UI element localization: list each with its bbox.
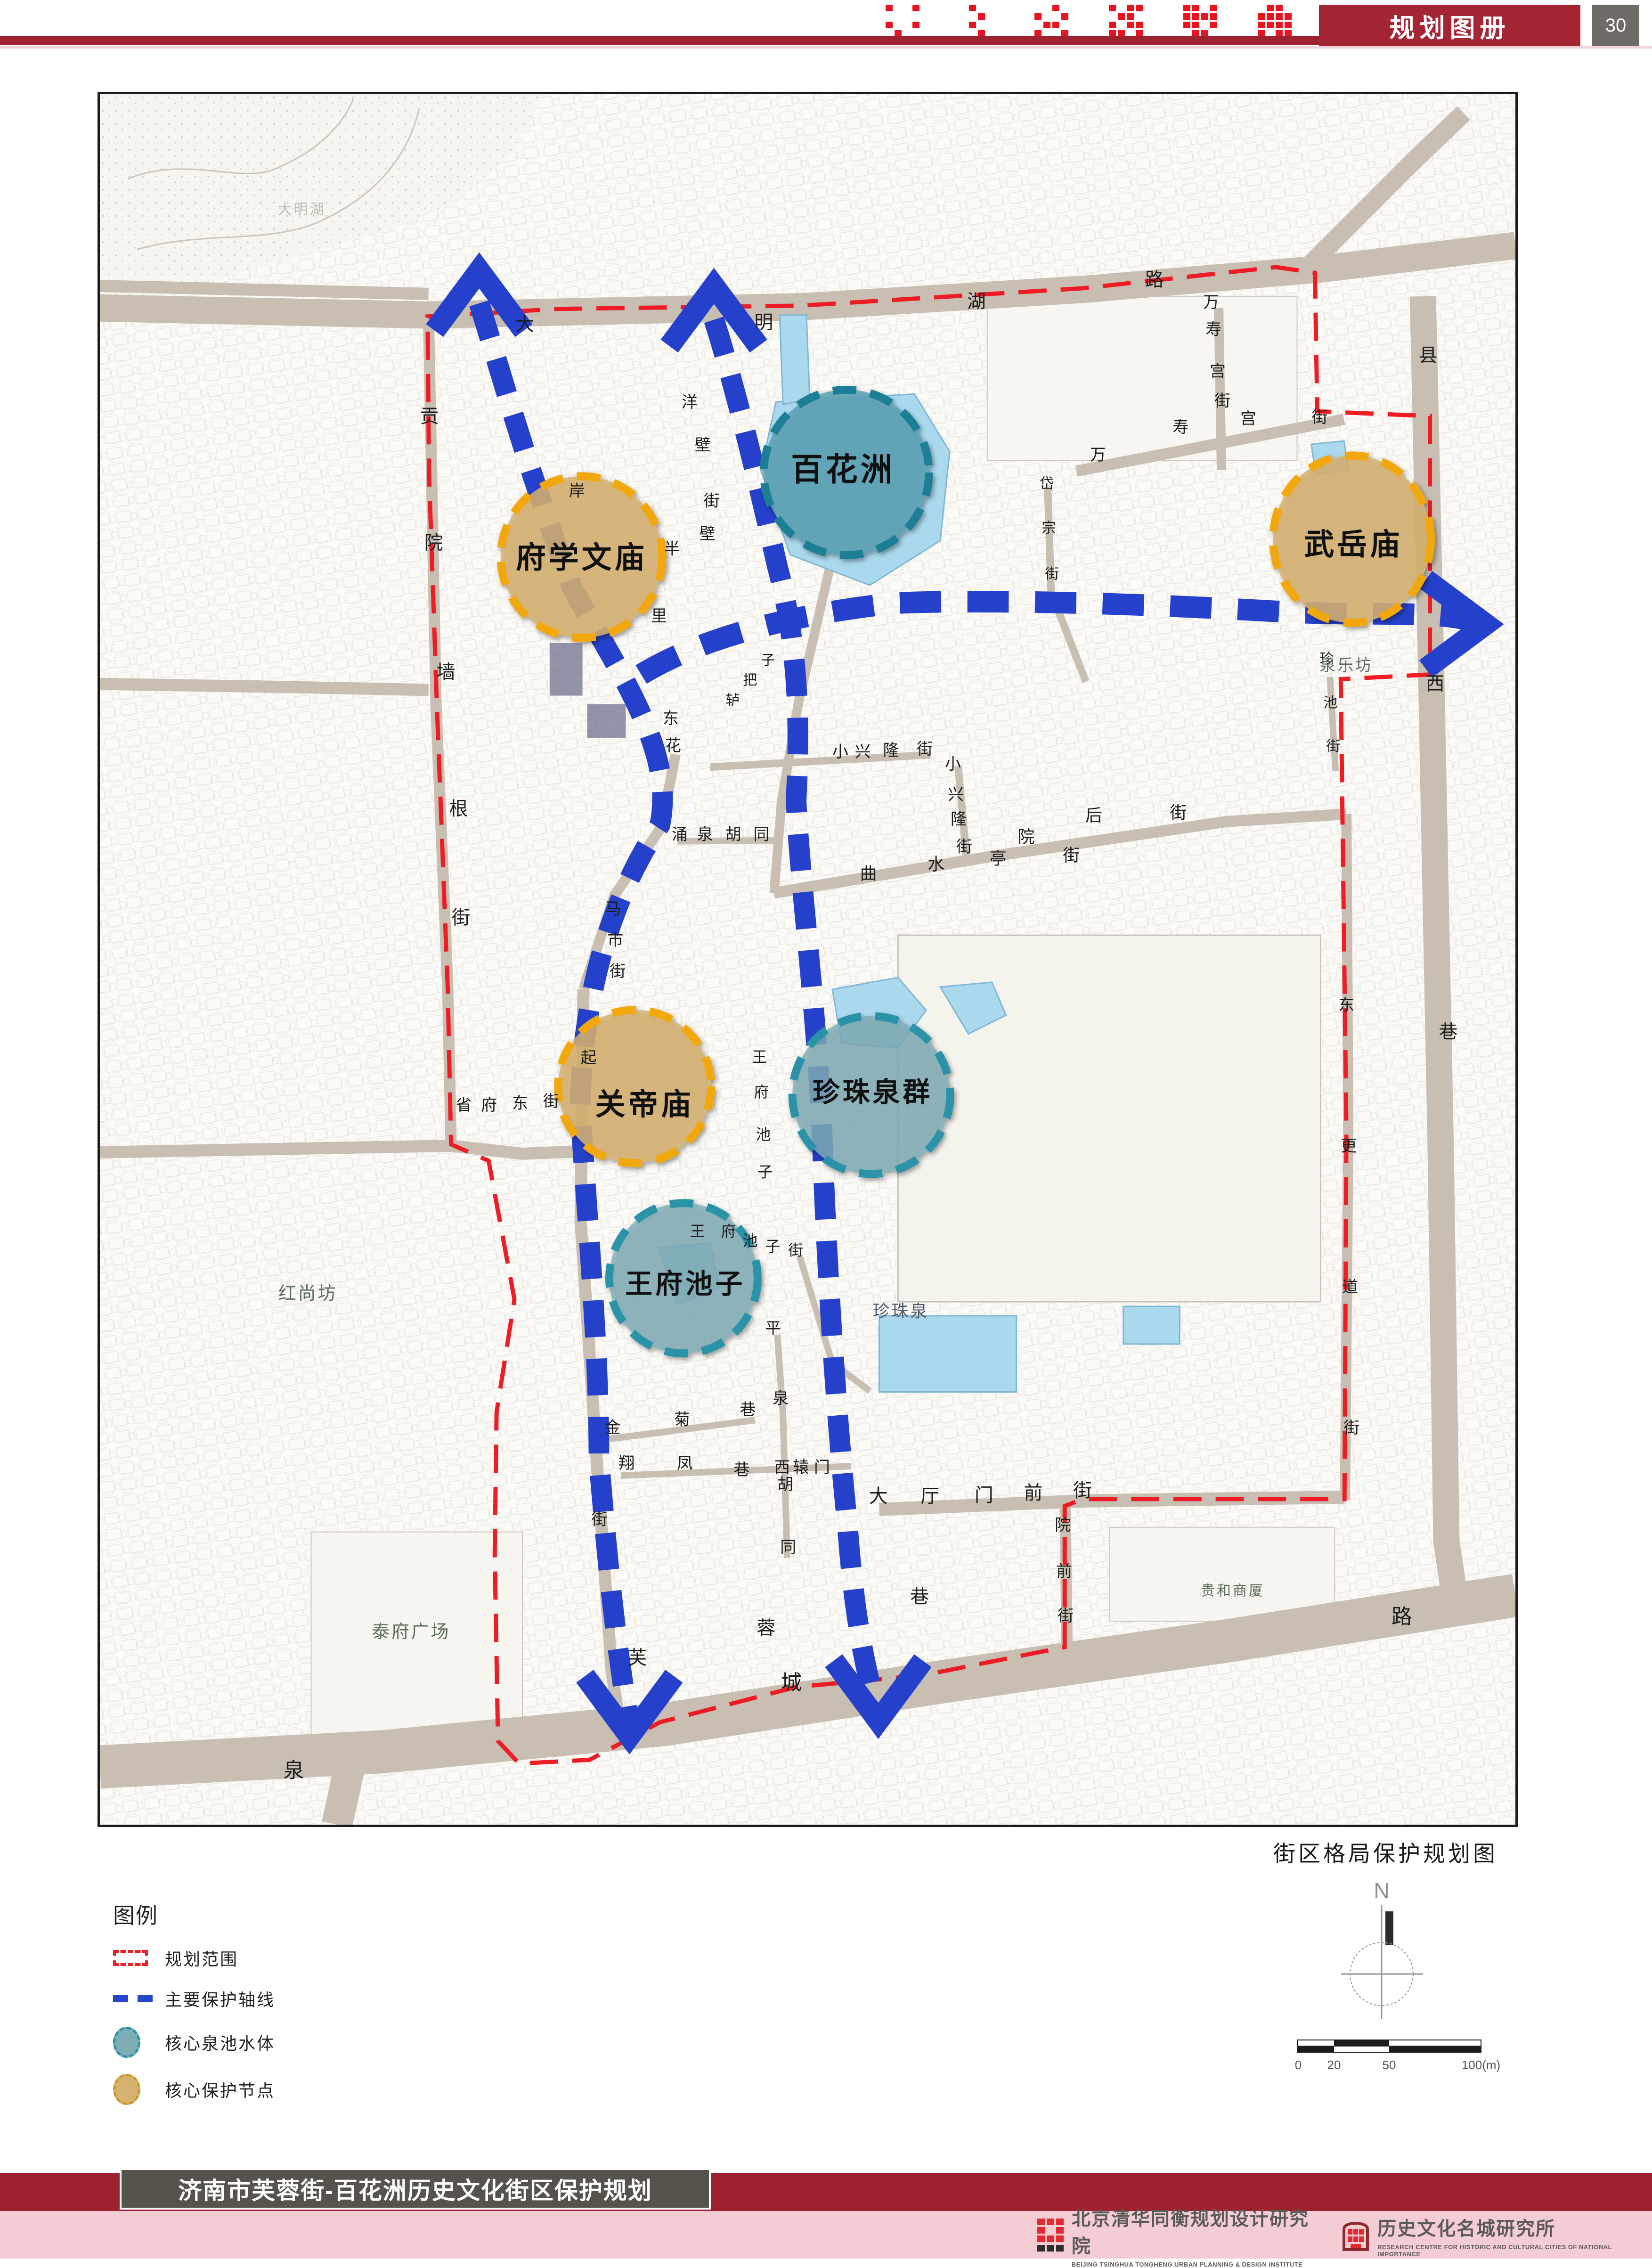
- svg-text:路: 路: [1392, 1605, 1412, 1628]
- svg-text:50: 50: [1383, 2058, 1396, 2072]
- svg-text:半: 半: [664, 540, 680, 558]
- svg-text:子: 子: [761, 653, 775, 669]
- svg-text:门: 门: [975, 1485, 993, 1506]
- svg-text:马: 马: [605, 900, 621, 918]
- svg-text:明: 明: [754, 312, 773, 333]
- svg-text:壁: 壁: [695, 436, 711, 454]
- svg-text:泰府广场: 泰府广场: [372, 1622, 450, 1642]
- svg-text:岱: 岱: [1040, 476, 1054, 492]
- svg-text:府学文庙: 府学文庙: [516, 540, 647, 574]
- header-section-title: 规划图册: [1319, 5, 1580, 46]
- svg-text:兴: 兴: [855, 743, 871, 761]
- legend-item: 核心保护节点: [113, 2074, 471, 2105]
- svg-text:亭: 亭: [990, 849, 1007, 868]
- org2-name-en: RESEARCH CENTRE FOR HISTORIC AND CULTURA…: [1377, 2244, 1652, 2258]
- legend: 图例 规划范围主要保护轴线核心泉池水体核心保护节点: [113, 1899, 471, 2105]
- svg-text:花: 花: [665, 737, 681, 755]
- legend-symbol-sym-axis: [113, 1995, 153, 2002]
- svg-text:平: 平: [765, 1320, 781, 1338]
- svg-text:门: 门: [814, 1459, 830, 1477]
- svg-text:万: 万: [1203, 294, 1219, 311]
- svg-text:曲: 曲: [860, 864, 877, 883]
- org2: 历史文化名城研究所 RESEARCH CENTRE FOR HISTORIC A…: [1340, 2213, 1652, 2258]
- svg-text:街: 街: [592, 1511, 608, 1529]
- svg-text:街: 街: [1311, 408, 1327, 426]
- svg-text:墙: 墙: [437, 662, 456, 683]
- svg-text:胡: 胡: [725, 826, 741, 844]
- legend-symbol-sym-water: [113, 2027, 140, 2058]
- svg-text:路: 路: [1145, 269, 1164, 290]
- org1-name-en: BEIJING TSINGHUA TONGHENG URBAN PLANNING…: [1072, 2261, 1324, 2268]
- map-canvas: 大明湖路万寿宫街万寿宫街县西巷贡院墙根街省府东街洋壁街半壁岸里轳把子东花小兴隆街…: [100, 94, 1515, 1825]
- svg-text:岸: 岸: [569, 482, 585, 500]
- svg-text:巷: 巷: [1439, 1022, 1458, 1043]
- svg-text:街: 街: [543, 1093, 559, 1110]
- svg-text:街: 街: [1170, 803, 1187, 822]
- svg-text:街: 街: [1045, 566, 1059, 582]
- svg-text:院: 院: [424, 532, 443, 553]
- svg-text:菊: 菊: [674, 1411, 690, 1428]
- svg-text:把: 把: [743, 673, 757, 688]
- svg-text:小: 小: [945, 755, 961, 773]
- svg-text:同: 同: [780, 1539, 796, 1557]
- svg-text:湖: 湖: [967, 291, 986, 312]
- legend-label: 主要保护轴线: [165, 1986, 275, 2011]
- svg-text:蓉: 蓉: [757, 1618, 775, 1639]
- svg-text:府: 府: [721, 1223, 736, 1240]
- svg-text:省: 省: [456, 1096, 472, 1114]
- svg-text:街: 街: [1073, 1480, 1092, 1501]
- svg-text:金: 金: [604, 1419, 620, 1436]
- svg-text:泉: 泉: [773, 1389, 789, 1407]
- svg-text:院: 院: [1055, 1517, 1071, 1534]
- svg-text:寿: 寿: [1205, 321, 1221, 339]
- svg-text:洋: 洋: [682, 393, 698, 411]
- svg-text:万: 万: [1090, 446, 1106, 464]
- svg-text:王: 王: [690, 1223, 705, 1240]
- svg-text:街: 街: [1063, 846, 1080, 865]
- svg-text:珍珠泉群: 珍珠泉群: [813, 1077, 933, 1108]
- svg-text:宫: 宫: [1210, 362, 1226, 380]
- legend-item: 规划范围: [113, 1946, 471, 1970]
- svg-text:胡: 胡: [777, 1476, 793, 1493]
- header-accent-band: [0, 36, 1319, 45]
- svg-text:兴: 兴: [948, 786, 964, 804]
- svg-text:水: 水: [928, 855, 944, 874]
- svg-text:同: 同: [753, 826, 769, 844]
- page-number-badge: 30: [1592, 5, 1639, 46]
- svg-text:街: 街: [788, 1241, 803, 1258]
- svg-text:里: 里: [651, 607, 667, 625]
- svg-text:芙: 芙: [628, 1648, 647, 1668]
- page: { "header":{"title":"规划图册","page_number"…: [0, 0, 1652, 2259]
- historic-cities-logo-icon: [1340, 2217, 1371, 2254]
- svg-text:轳: 轳: [726, 693, 740, 708]
- scale-bar-blocks: [1297, 2040, 1481, 2052]
- svg-text:道: 道: [1342, 1278, 1358, 1296]
- project-title: 济南市芙蓉街-百花洲历史文化街区保护规划: [120, 2168, 711, 2210]
- svg-text:前: 前: [1024, 1483, 1042, 1503]
- svg-text:辕: 辕: [793, 1459, 809, 1477]
- scale-tick-labels: 02050100(m): [1295, 2058, 1500, 2072]
- svg-text:更: 更: [1341, 1137, 1357, 1155]
- svg-text:巷: 巷: [910, 1586, 929, 1607]
- svg-text:东: 东: [663, 710, 679, 727]
- svg-text:泉: 泉: [284, 1759, 304, 1782]
- legend-symbol-sym-node: [113, 2074, 140, 2105]
- svg-text:子: 子: [757, 1164, 773, 1181]
- svg-text:东: 东: [512, 1094, 528, 1112]
- svg-text:街: 街: [1058, 1607, 1074, 1625]
- svg-text:东: 东: [1338, 996, 1354, 1014]
- svg-text:红尚坊: 红尚坊: [278, 1284, 338, 1304]
- svg-text:泉: 泉: [697, 826, 713, 844]
- svg-text:武岳庙: 武岳庙: [1304, 527, 1403, 561]
- legend-item: 核心泉池水体: [113, 2027, 471, 2058]
- svg-text:王: 王: [752, 1048, 767, 1065]
- svg-text:池: 池: [1323, 695, 1337, 710]
- north-label: N: [1374, 1878, 1389, 1903]
- svg-text:街: 街: [917, 740, 933, 758]
- svg-text:隆: 隆: [951, 810, 967, 828]
- legend-label: 核心保护节点: [165, 2077, 275, 2102]
- svg-text:0: 0: [1295, 2058, 1302, 2072]
- svg-text:街: 街: [1214, 392, 1230, 410]
- svg-text:前: 前: [1056, 1562, 1072, 1580]
- svg-text:厅: 厅: [920, 1486, 939, 1507]
- svg-text:院: 院: [1018, 828, 1035, 847]
- svg-text:市: 市: [607, 931, 623, 949]
- svg-text:池: 池: [756, 1126, 771, 1143]
- legend-item: 主要保护轴线: [113, 1986, 471, 2011]
- svg-text:大: 大: [869, 1486, 888, 1507]
- svg-text:街: 街: [1326, 739, 1340, 754]
- svg-text:街: 街: [610, 963, 626, 980]
- org1-name-zh: 北京清华同衡规划设计研究院: [1072, 2203, 1324, 2258]
- svg-text:关帝庙: 关帝庙: [595, 1087, 694, 1121]
- planning-map: 大明湖路万寿宫街万寿宫街县西巷贡院墙根街省府东街洋壁街半壁岸里轳把子东花小兴隆街…: [98, 92, 1518, 1827]
- north-arrow: N: [1335, 1877, 1434, 2023]
- svg-text:泉乐坊: 泉乐坊: [1319, 657, 1373, 675]
- scale-bar: 02050100(m): [1295, 2035, 1503, 2078]
- svg-text:大: 大: [515, 314, 534, 335]
- svg-text:县: 县: [1419, 345, 1438, 366]
- svg-text:100(m): 100(m): [1462, 2058, 1500, 2072]
- org2-name-zh: 历史文化名城研究所: [1377, 2213, 1652, 2241]
- svg-text:城: 城: [781, 1671, 802, 1694]
- svg-text:巷: 巷: [740, 1401, 756, 1419]
- svg-text:后: 后: [1085, 806, 1102, 825]
- svg-text:街: 街: [1343, 1419, 1359, 1437]
- svg-text:大明湖: 大明湖: [278, 202, 326, 217]
- org1: 北京清华同衡规划设计研究院 BEIJING TSINGHUA TONGHENG …: [1036, 2203, 1324, 2268]
- svg-text:巷: 巷: [734, 1461, 750, 1479]
- svg-text:隆: 隆: [883, 742, 899, 759]
- svg-text:壁: 壁: [700, 525, 716, 543]
- map-caption: 街区格局保护规划图: [1272, 1836, 1498, 1868]
- svg-text:珍珠泉: 珍珠泉: [873, 1302, 929, 1321]
- svg-text:街: 街: [956, 838, 972, 856]
- legend-label: 规划范围: [165, 1946, 238, 1970]
- svg-text:涌: 涌: [672, 826, 688, 844]
- legend-label: 核心泉池水体: [165, 2030, 275, 2055]
- svg-text:贡: 贡: [420, 406, 439, 427]
- svg-text:翔: 翔: [618, 1454, 635, 1472]
- svg-text:凤: 凤: [677, 1454, 693, 1472]
- svg-text:府: 府: [481, 1096, 497, 1114]
- legend-symbol-sym-range: [113, 1950, 148, 1966]
- svg-text:起: 起: [581, 1049, 597, 1067]
- svg-text:20: 20: [1327, 2058, 1341, 2072]
- svg-text:根: 根: [449, 799, 468, 819]
- svg-text:宫: 宫: [1240, 410, 1256, 428]
- svg-text:府: 府: [754, 1084, 769, 1101]
- svg-text:池: 池: [742, 1232, 757, 1249]
- svg-text:西: 西: [774, 1459, 790, 1477]
- svg-text:小: 小: [832, 743, 848, 761]
- svg-text:王府池子: 王府池子: [625, 1269, 745, 1299]
- svg-text:百花洲: 百花洲: [791, 452, 895, 488]
- svg-text:贵和商厦: 贵和商厦: [1201, 1583, 1264, 1599]
- legend-title: 图例: [113, 1899, 471, 1930]
- svg-text:宗: 宗: [1042, 520, 1056, 536]
- svg-text:街: 街: [452, 907, 471, 928]
- svg-text:西: 西: [1426, 674, 1445, 694]
- svg-text:子: 子: [765, 1238, 780, 1255]
- tsinghua-tongheng-logo-icon: [1036, 2218, 1065, 2253]
- svg-text:街: 街: [704, 492, 720, 510]
- svg-text:寿: 寿: [1172, 418, 1188, 436]
- header-hairline: [0, 46, 1652, 49]
